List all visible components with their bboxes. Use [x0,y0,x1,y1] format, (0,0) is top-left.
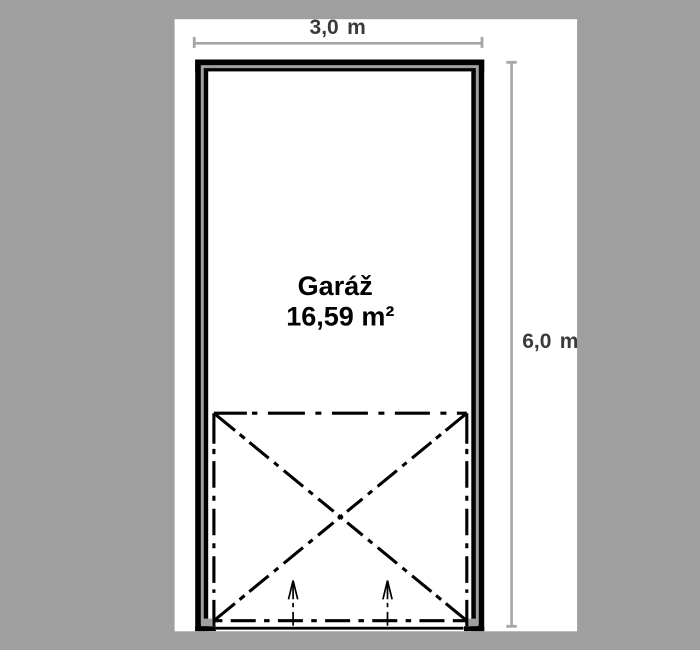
svg-text:16,59 m²: 16,59 m² [286,301,394,331]
svg-text:Garáž: Garáž [298,271,373,301]
svg-text:6,0 m: 6,0 m [522,330,578,353]
svg-text:3,0 m: 3,0 m [310,16,366,39]
